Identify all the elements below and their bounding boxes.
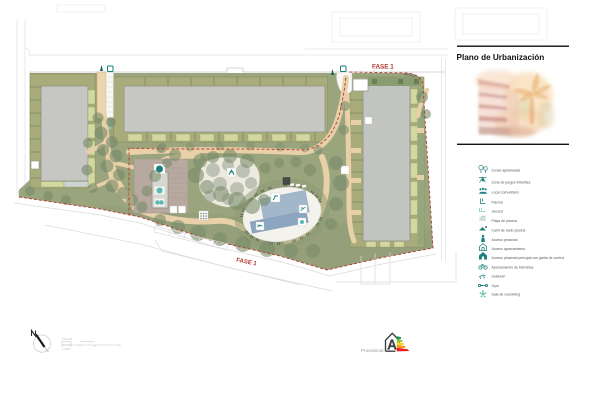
svg-text:FASE 1: FASE 1 [236,258,258,268]
svg-text:0 5 10 25: 0 5 10 25 [62,338,73,341]
svg-text:e 1:500: e 1:500 [62,348,71,351]
svg-text:Plano de Urbanización: Plano de Urbanización [457,53,545,62]
svg-text:Acceso peatonal principal con: Acceso peatonal principal con garita de … [492,256,565,260]
svg-text:FASE 1: FASE 1 [372,64,394,71]
svg-text:Acceso peatonal: Acceso peatonal [492,238,518,242]
svg-text:Acceso aparcamiento: Acceso aparcamiento [492,247,526,251]
svg-text:Aparcamiento de bicicletas: Aparcamiento de bicicletas [492,266,534,270]
svg-text:Playa de piscina: Playa de piscina [492,219,518,223]
svg-text:Jacuzzi: Jacuzzi [492,210,504,214]
svg-text:Gym: Gym [492,284,499,288]
svg-text:Sala de coworking: Sala de coworking [492,293,521,297]
svg-text:Local comunitario: Local comunitario [492,191,519,195]
svg-text:Solarium: Solarium [492,275,506,279]
svg-text:Carril de nado piscina: Carril de nado piscina [492,229,526,233]
svg-text:Piscina: Piscina [492,201,503,205]
svg-text:Zona de juegos infantiles: Zona de juegos infantiles [492,181,531,185]
svg-text:Provisional: Provisional [361,348,383,353]
svg-text:Zonas ajardinadas: Zonas ajardinadas [492,169,521,173]
